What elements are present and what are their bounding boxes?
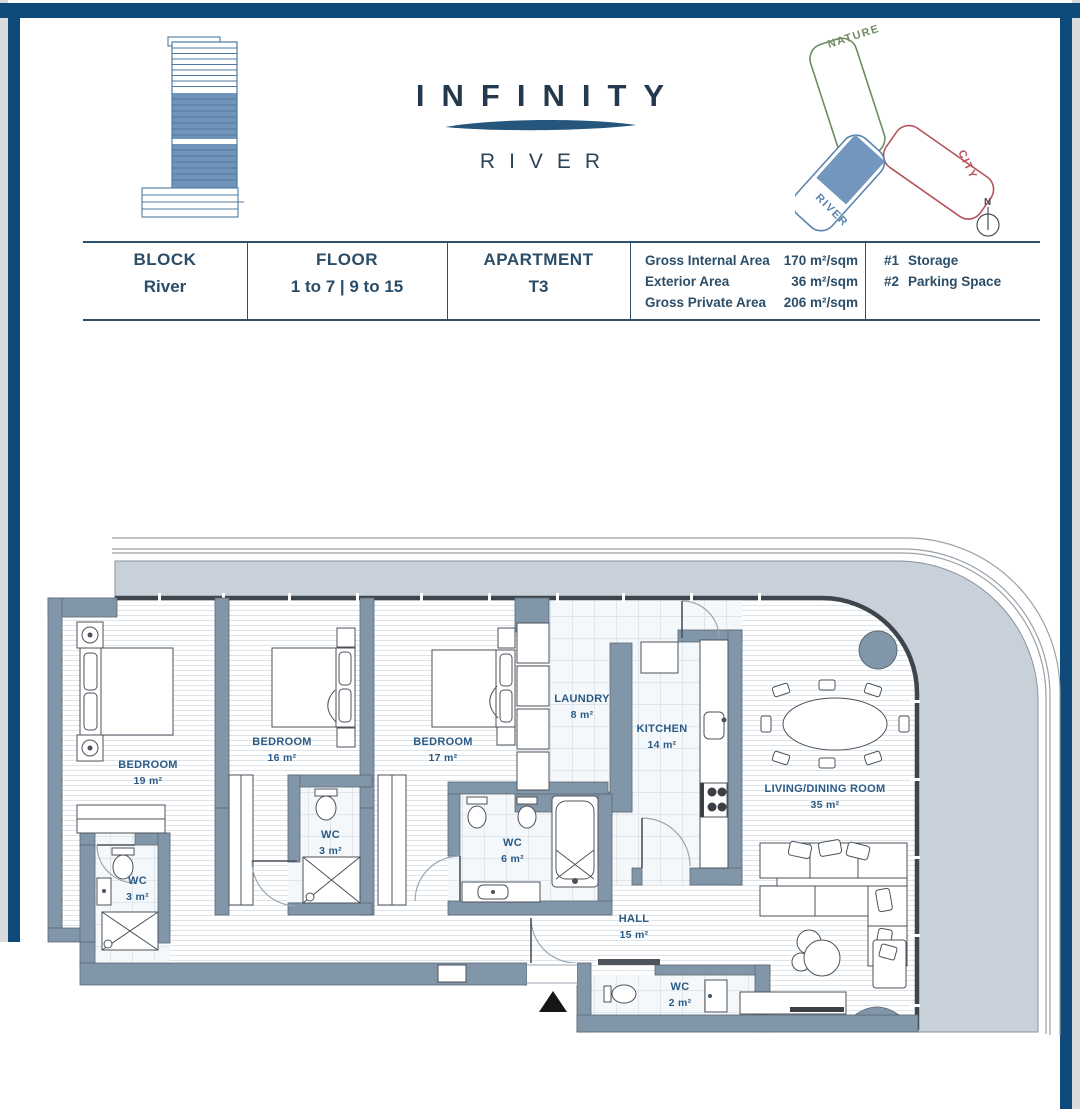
apartment-value: T3: [447, 277, 630, 297]
area-value: 170 m²/sqm: [784, 251, 858, 272]
room-name: WC: [671, 981, 690, 993]
area-label: Gross Internal Area: [645, 251, 770, 272]
exterior-mask: [0, 985, 577, 1109]
brand-subtitle: RIVER: [310, 150, 770, 174]
area-value: 206 m²/sqm: [784, 293, 858, 314]
room-area: 35 m²: [811, 799, 840, 811]
floor-value: 1 to 7 | 9 to 15: [247, 277, 447, 297]
block-label: BLOCK: [83, 250, 247, 270]
area-value: 36 m²/sqm: [791, 272, 858, 293]
hall-window: [438, 965, 466, 982]
table-divider: [865, 241, 866, 319]
room-label-hall: HALL 15 m²: [598, 912, 670, 944]
room-area: 14 m²: [648, 739, 677, 751]
cell-floor: FLOOR 1 to 7 | 9 to 15: [247, 250, 447, 297]
tv: [790, 1007, 844, 1012]
room-name: BEDROOM: [413, 736, 473, 748]
room-name: WC: [503, 837, 522, 849]
room-area: 2 m²: [669, 997, 692, 1009]
extra-text: Storage: [908, 251, 958, 272]
room-label-bedroom-3: BEDROOM 17 m²: [393, 735, 493, 767]
room-label-wc-2: WC 3 m²: [303, 828, 358, 860]
dining-table: [783, 698, 887, 750]
apartment-label: APARTMENT: [447, 250, 630, 270]
room-name: BEDROOM: [252, 736, 312, 748]
room-name: LAUNDRY: [554, 693, 609, 705]
area-row: Gross Internal Area 170 m²/sqm: [645, 251, 858, 272]
brochure-page: INFINITY RIVER NATURE CITY RIVER N: [0, 0, 1080, 1109]
brand-title: INFINITY: [310, 78, 770, 114]
table-top-rule: [83, 241, 1040, 243]
room-name: WC: [128, 875, 147, 887]
table-divider: [630, 241, 631, 319]
extra-num: #2: [884, 272, 899, 293]
cell-extras: #1 Storage #2 Parking Space: [884, 251, 1044, 293]
brand-swoosh-icon: [440, 116, 640, 136]
room-area: 17 m²: [429, 752, 458, 764]
room-name: HALL: [619, 913, 650, 925]
room-name: BEDROOM: [118, 759, 178, 771]
room-area: 19 m²: [134, 775, 163, 787]
block-value: River: [83, 277, 247, 297]
room-name: LIVING/DINING ROOM: [765, 783, 886, 795]
extra-num: #1: [884, 251, 899, 272]
room-label-wc-1: WC 3 m²: [110, 874, 165, 906]
room-label-laundry: LAUNDRY 8 m²: [538, 692, 626, 724]
extra-row: #1 Storage: [884, 251, 1044, 272]
room-label-bedroom-1: BEDROOM 19 m²: [88, 758, 208, 790]
keyplan-diagram: NATURE CITY RIVER N: [795, 18, 1010, 243]
cell-apartment: APARTMENT T3: [447, 250, 630, 297]
area-row: Exterior Area 36 m²/sqm: [645, 272, 858, 293]
armchair: [873, 940, 906, 988]
extra-text: Parking Space: [908, 272, 1001, 293]
room-label-wc-main: WC 6 m²: [485, 836, 540, 868]
column: [859, 631, 897, 669]
room-area: 6 m²: [501, 853, 524, 865]
compass-n-label: N: [984, 197, 991, 208]
cell-block: BLOCK River: [83, 250, 247, 297]
frame-top: [0, 3, 1080, 18]
room-name: KITCHEN: [637, 723, 688, 735]
room-area: 16 m²: [268, 752, 297, 764]
room-label-living-dining: LIVING/DINING ROOM 35 m²: [740, 782, 910, 814]
table-bottom-rule: [83, 319, 1040, 321]
cell-areas: Gross Internal Area 170 m²/sqm Exterior …: [645, 251, 858, 314]
building-logo: [140, 35, 250, 220]
floor-label: FLOOR: [247, 250, 447, 270]
keyplan-arm-city: [878, 120, 1000, 225]
floor-plan: [0, 530, 1080, 1109]
room-label-kitchen: KITCHEN 14 m²: [612, 722, 712, 754]
extra-row: #2 Parking Space: [884, 272, 1044, 293]
room-area: 8 m²: [571, 709, 594, 721]
area-label: Exterior Area: [645, 272, 729, 293]
area-label: Gross Private Area: [645, 293, 766, 314]
room-label-wc-guest: WC 2 m²: [650, 980, 710, 1012]
room-label-bedroom-2: BEDROOM 16 m²: [232, 735, 332, 767]
room-area: 3 m²: [126, 891, 149, 903]
room-name: WC: [321, 829, 340, 841]
room-area: 3 m²: [319, 845, 342, 857]
room-area: 15 m²: [620, 929, 649, 941]
exterior-mask: [0, 942, 80, 1109]
area-row: Gross Private Area 206 m²/sqm: [645, 293, 858, 314]
